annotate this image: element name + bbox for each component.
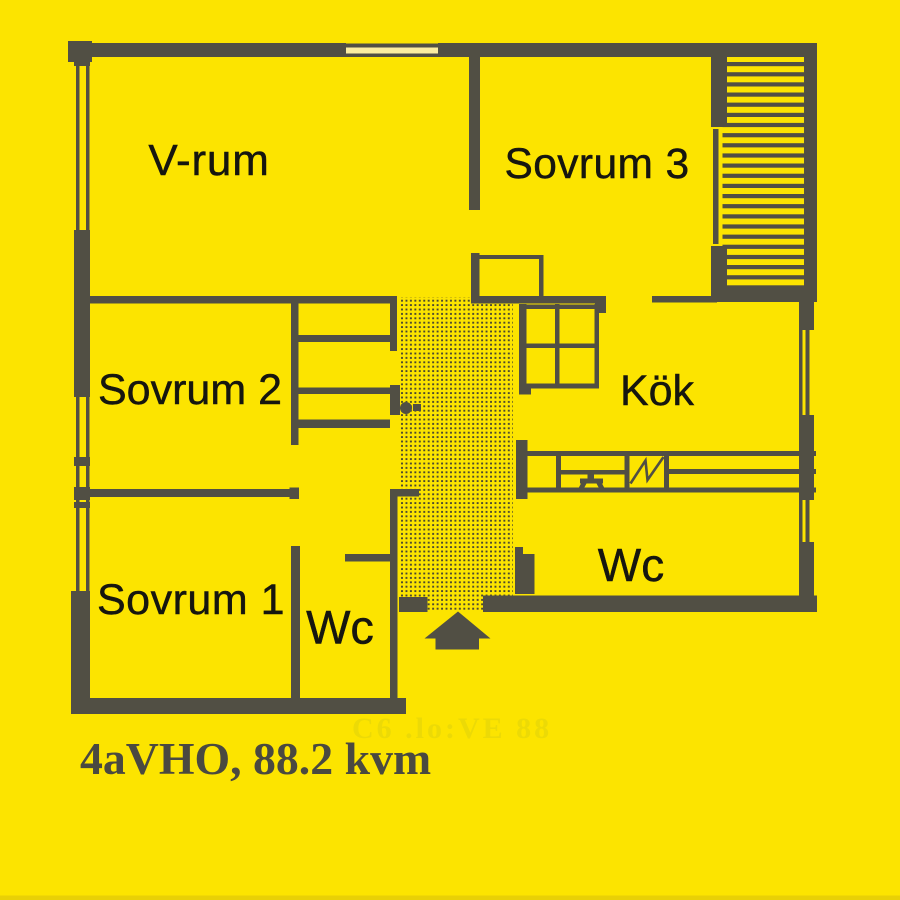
svg-text:Sovrum 3: Sovrum 3 — [504, 141, 689, 188]
svg-text:Sovrum 2: Sovrum 2 — [98, 366, 282, 414]
svg-text:4aVHO, 88.2 kvm: 4aVHO, 88.2 kvm — [80, 733, 431, 784]
svg-text:Wc: Wc — [306, 601, 374, 654]
svg-text:Wc: Wc — [598, 539, 664, 591]
svg-text:V-rum: V-rum — [148, 136, 269, 185]
svg-text:Kök: Kök — [620, 367, 695, 415]
svg-text:Sovrum 1: Sovrum 1 — [97, 576, 285, 624]
